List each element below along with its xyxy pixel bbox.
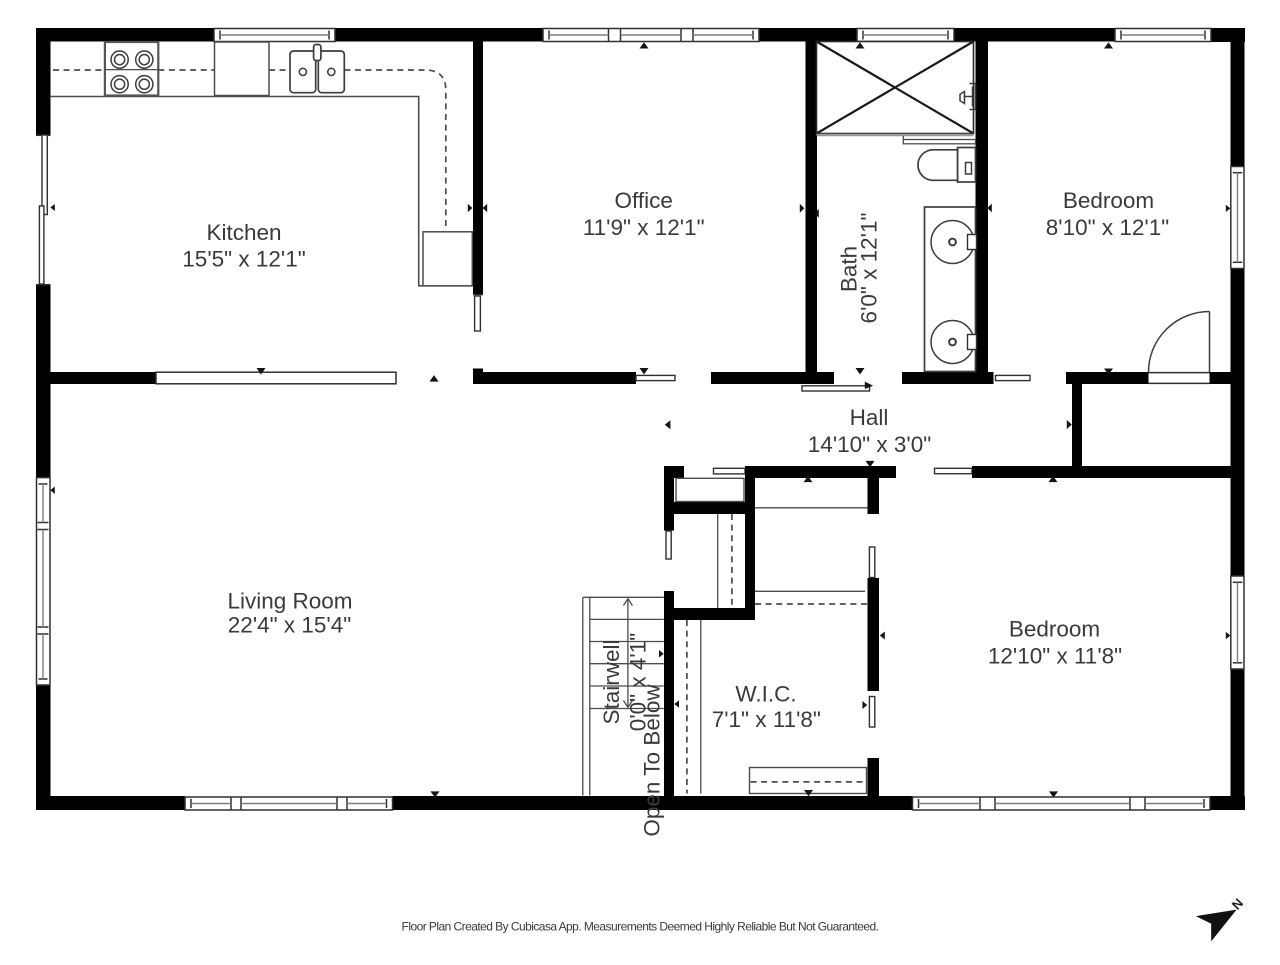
svg-text:12'10" x 11'8": 12'10" x 11'8" — [988, 644, 1122, 669]
svg-text:Open To Below: Open To Below — [640, 684, 665, 837]
svg-text:Bedroom: Bedroom — [1063, 188, 1154, 213]
svg-text:22'4" x 15'4": 22'4" x 15'4" — [228, 613, 351, 638]
svg-text:6'0" x 12'1": 6'0" x 12'1" — [856, 213, 881, 324]
svg-text:Kitchen: Kitchen — [206, 220, 281, 245]
svg-text:15'5" x 12'1": 15'5" x 12'1" — [182, 247, 305, 272]
svg-text:7'1" x 11'8": 7'1" x 11'8" — [712, 707, 821, 732]
svg-text:Office: Office — [615, 188, 673, 213]
svg-text:Hall: Hall — [850, 405, 889, 430]
svg-text:Stairwell: Stairwell — [599, 639, 624, 724]
svg-text:Living Room: Living Room — [227, 589, 352, 614]
svg-text:W.I.C.: W.I.C. — [735, 681, 796, 706]
svg-text:Floor Plan Created By Cubicasa: Floor Plan Created By Cubicasa App. Meas… — [402, 920, 879, 934]
svg-text:11'9" x 12'1": 11'9" x 12'1" — [583, 215, 705, 240]
svg-text:8'10" x 12'1": 8'10" x 12'1" — [1046, 215, 1169, 240]
svg-text:14'10" x 3'0": 14'10" x 3'0" — [808, 432, 931, 457]
svg-text:Bedroom: Bedroom — [1009, 616, 1100, 641]
